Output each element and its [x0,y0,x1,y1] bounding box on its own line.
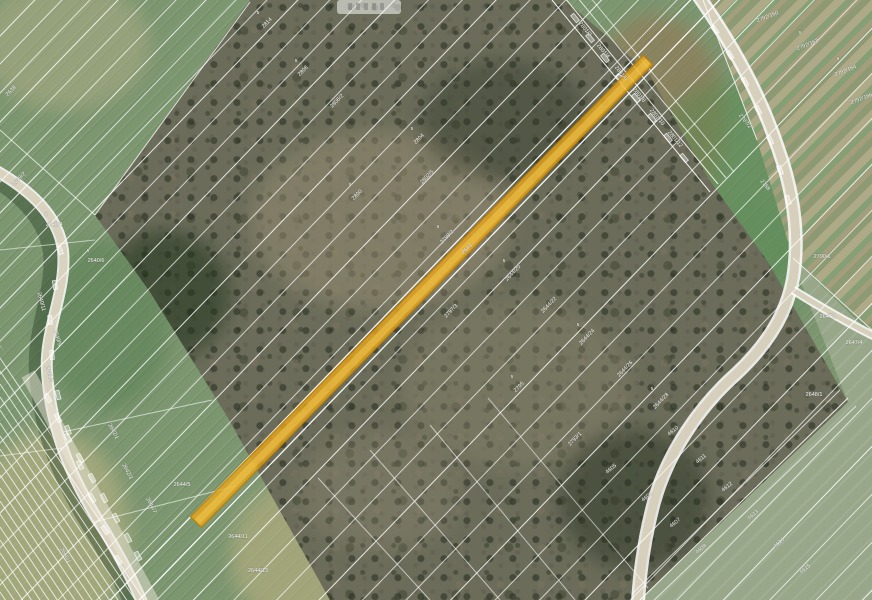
parcel-label: 2792/164 [834,64,858,78]
parcel-label: 2804 [413,133,426,146]
parcel-label: 2790/1 [814,254,831,260]
parcel-label: 2640/4 [46,222,63,228]
small-parcel-box [50,350,55,359]
parcel-label: 4613 [747,509,760,521]
parcel-boundary-line [0,0,872,244]
parcel-label: 2806/2 [329,93,345,109]
parcel-lines-diagonal [0,0,872,600]
parcel-label: 2644/20 [504,264,522,282]
parcel-label: 4611 [695,453,708,465]
parcel-label: 2644/5 [174,482,191,488]
parcel-boundary-line [0,48,872,600]
parcel-label: 5 [837,56,840,61]
parcel-label: 2798/2 [439,229,455,245]
parcel-boundary-line [0,0,872,306]
parcel-label: 5 [437,224,440,229]
watermark-logo [337,0,401,14]
parcel-label: 2793/1 [567,431,583,447]
parcel-label: 5 [257,10,260,15]
parcel-boundary-line [0,0,872,214]
parcel-label: 2642/1 [106,423,119,441]
parcel-label: 2814 [261,17,274,30]
parcel-label: 2795 [513,381,526,394]
parcel-boundary-line [430,425,575,600]
parcel-label: 4612 [721,481,734,493]
parcel-label: 2647/2 [820,314,837,320]
road-right-edge [638,0,796,600]
parcel-label: 5 [577,322,580,327]
parcel-boundary-line [0,0,872,575]
parcel-label: 2802/5 [419,169,435,185]
parcel-label: 2638 [5,85,18,98]
parcel-label: 2644/13 [248,568,268,574]
parcel-label: 2792/160 [756,10,780,24]
map-viewport[interactable]: 52814528082806/2528042802/55280052798/22… [0,0,872,600]
parcel-label: 2792/162 [796,38,820,52]
parcel-label: 2644/28 [652,392,670,410]
parcel-boundary-line [488,398,648,588]
cadastral-overlay: 52814528082806/2528042802/55280052798/22… [0,0,872,600]
parcel-label: 4614 [773,537,786,549]
parcel-boundary-line [0,233,872,600]
parcel-label: 5 [295,58,298,63]
parcel-label: 4615 [799,563,812,575]
parcel-label: 2788 [759,179,771,192]
parcel-boundary-line [568,0,726,178]
parcel-label: 5 [503,258,506,263]
parcel-label: 2800 [351,189,364,202]
parcel-boundary-line [63,400,212,432]
road-right [638,0,796,600]
parcel-boundary-line [0,186,872,600]
parcel-label: 2792/166 [850,92,872,106]
track-bottomleft-band [28,374,152,600]
small-parcel-box [48,315,53,324]
parcel-label: 2808 [297,65,310,78]
parcel-label: 2644/24 [578,328,596,346]
parcel-label: 5 [799,30,802,35]
parcel-label: 2644/11 [228,534,247,540]
parcel-boundary-line [370,450,500,600]
parcel-label: 4607 [669,517,682,529]
parcel-label: 4605 [605,463,618,475]
highlighted-parcel-group [191,56,653,528]
parcel-boundary-line [0,0,872,98]
parcel-label: 5 [411,126,414,131]
parcel-label: 2666/1 [58,547,71,565]
highlighted-parcel-core [195,59,651,525]
parcel-label: 2640/6 [88,258,105,264]
parcel-boundary-line [0,0,872,275]
parcel-label: 2648/1 [806,392,823,398]
parcel-boundary-line [318,478,430,600]
parcel-boundary-line [0,3,872,600]
parcel-boundary-line [552,0,710,192]
parcel-label: 5 [511,374,514,379]
parcel-label: 2644/26 [616,360,634,378]
parcel-label: 2797/3 [443,303,459,319]
small-parcel-box [680,153,689,162]
parcel-label: 2647/4 [846,340,863,346]
parcel-label: 2642/3 [120,463,133,481]
